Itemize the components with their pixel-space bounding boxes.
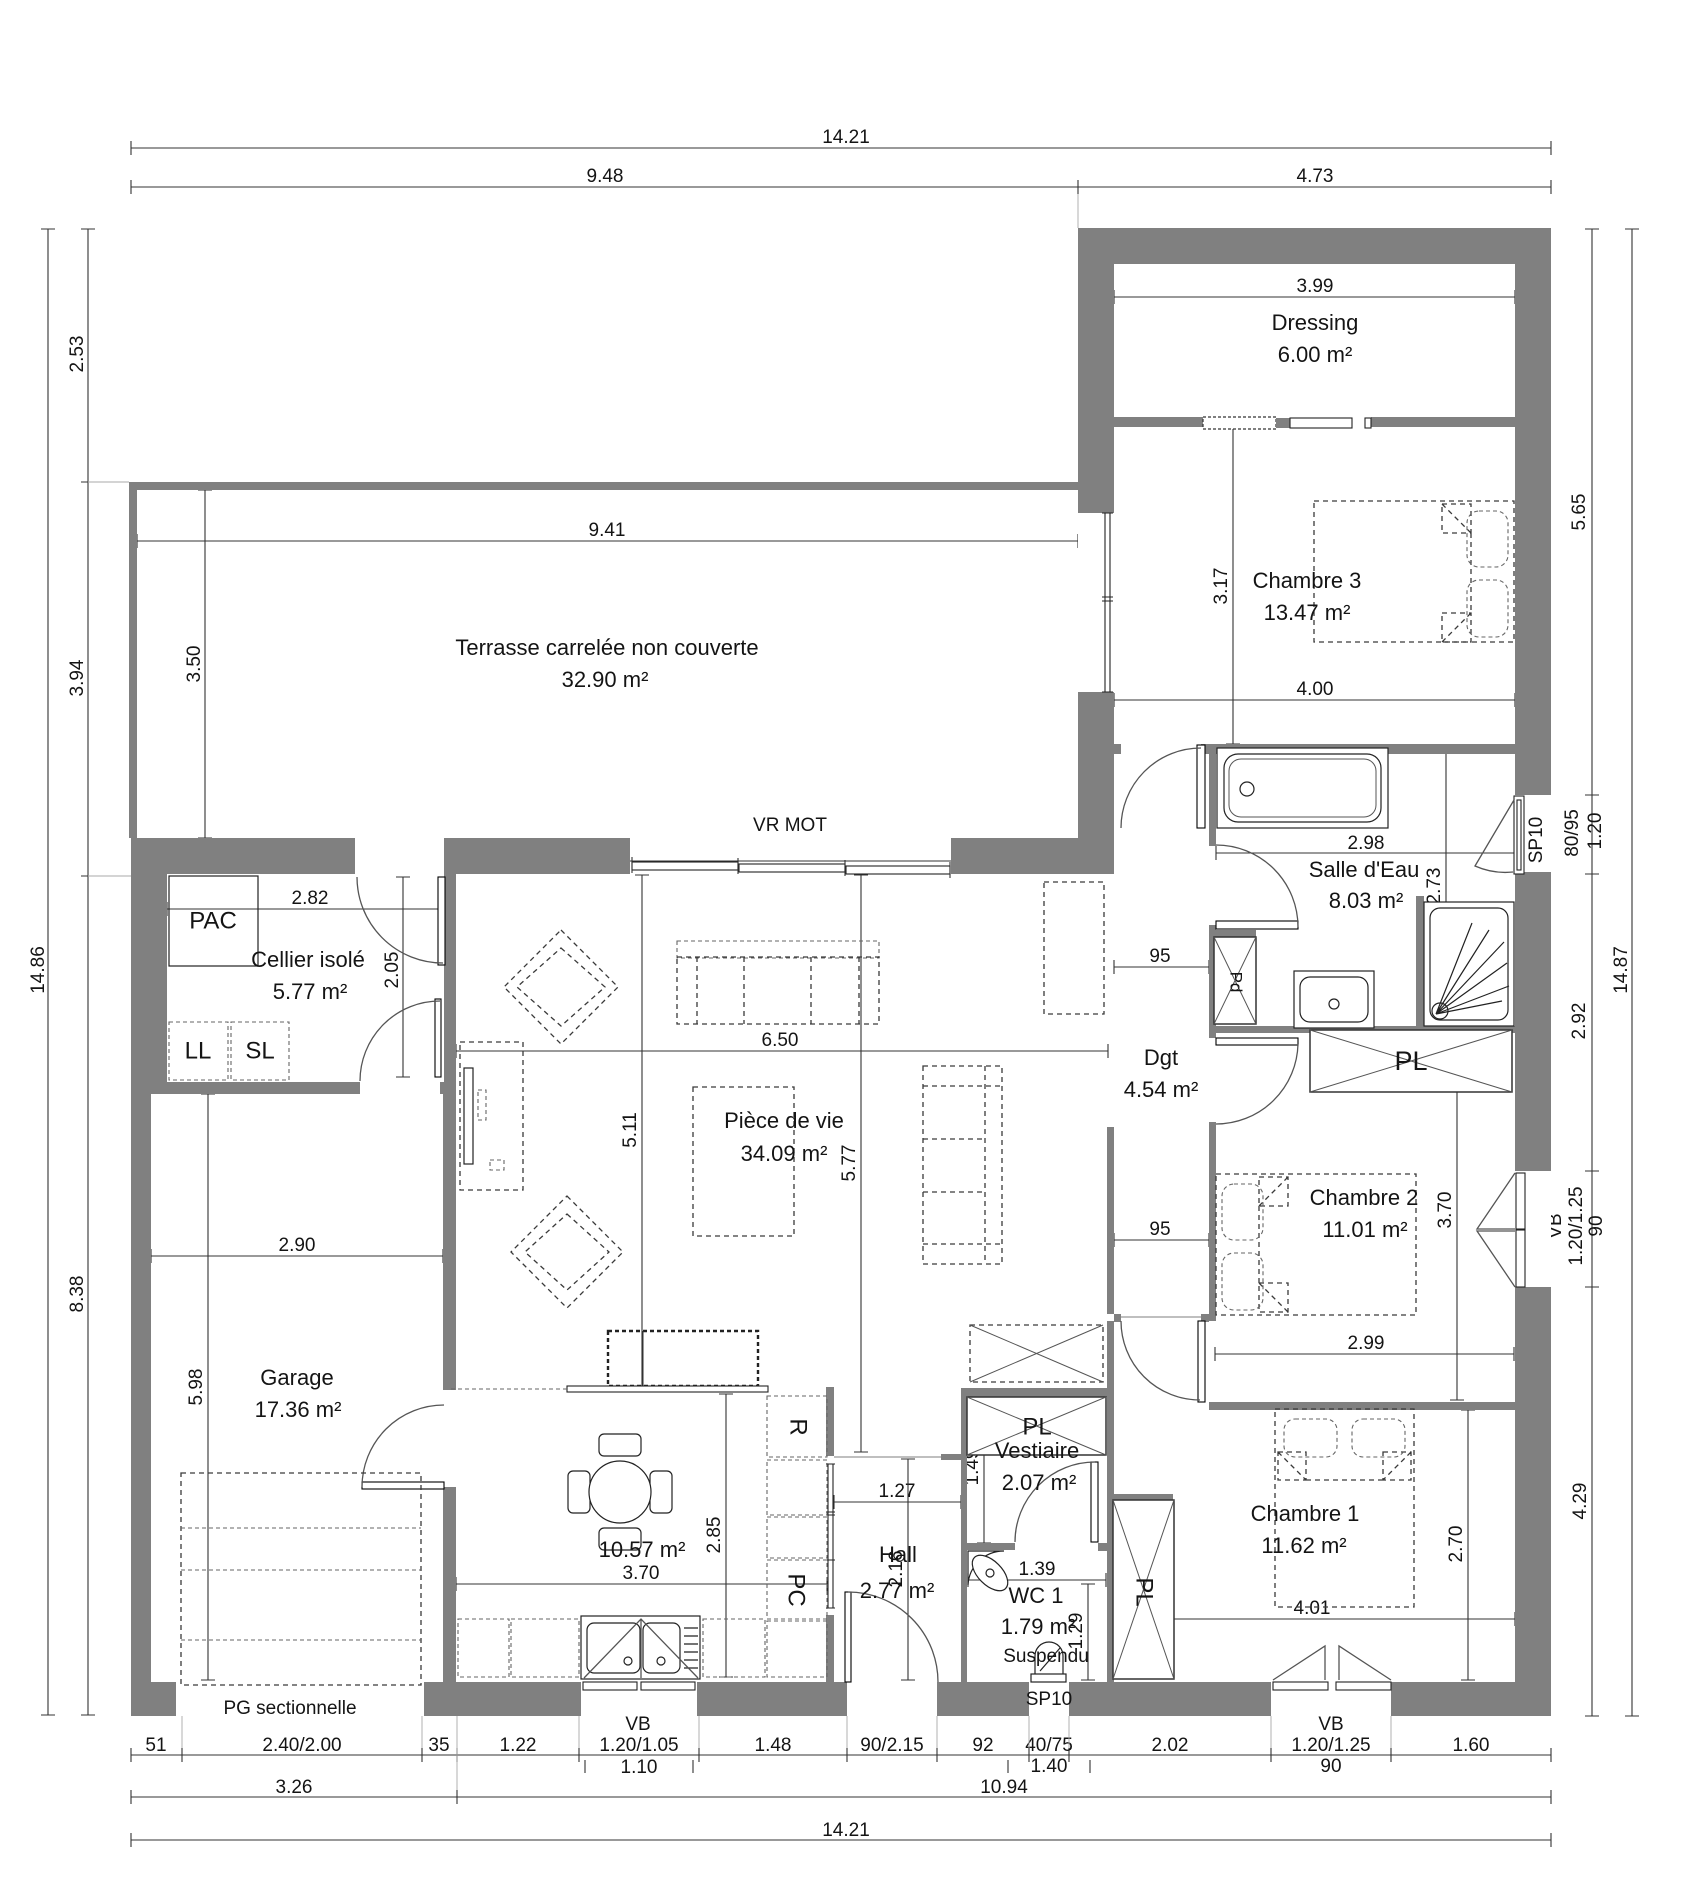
svg-text:PL: PL xyxy=(1022,1413,1051,1440)
svg-text:17.36 m²: 17.36 m² xyxy=(255,1397,342,1422)
svg-text:2.99: 2.99 xyxy=(1348,1333,1385,1354)
svg-text:Garage: Garage xyxy=(260,1365,333,1390)
svg-text:PC: PC xyxy=(783,1573,810,1606)
svg-text:40/75: 40/75 xyxy=(1025,1735,1073,1756)
svg-text:Dressing: Dressing xyxy=(1272,310,1359,335)
svg-text:1.27: 1.27 xyxy=(879,1481,916,1502)
svg-text:Vestiaire: Vestiaire xyxy=(995,1438,1079,1463)
svg-text:WC 1: WC 1 xyxy=(1009,1583,1064,1608)
svg-text:14.86: 14.86 xyxy=(28,946,49,994)
svg-text:80/95: 80/95 xyxy=(1562,809,1583,857)
svg-text:51: 51 xyxy=(145,1735,166,1756)
svg-text:1.10: 1.10 xyxy=(621,1757,658,1778)
svg-text:10.94: 10.94 xyxy=(980,1777,1028,1798)
svg-text:14.21: 14.21 xyxy=(822,127,870,148)
svg-text:PL: PL xyxy=(1131,1577,1158,1606)
svg-text:2.92: 2.92 xyxy=(1569,1003,1590,1040)
svg-text:1.20: 1.20 xyxy=(1585,813,1606,850)
svg-text:2.98: 2.98 xyxy=(1348,833,1385,854)
svg-text:VB: VB xyxy=(625,1714,650,1735)
svg-text:R: R xyxy=(785,1418,812,1435)
svg-text:4.54 m²: 4.54 m² xyxy=(1124,1077,1199,1102)
svg-text:2.85: 2.85 xyxy=(704,1517,725,1554)
svg-text:2.53: 2.53 xyxy=(67,336,88,373)
svg-text:Pd: Pd xyxy=(1227,972,1246,993)
svg-text:4.01: 4.01 xyxy=(1294,1598,1331,1619)
svg-text:5.77 m²: 5.77 m² xyxy=(273,979,348,1004)
svg-text:8.03 m²: 8.03 m² xyxy=(1329,888,1404,913)
svg-text:Chambre 1: Chambre 1 xyxy=(1251,1501,1360,1526)
svg-text:10.57 m²: 10.57 m² xyxy=(599,1537,686,1562)
svg-text:Salle d'Eau: Salle d'Eau xyxy=(1309,857,1420,882)
svg-text:1.20/1.25: 1.20/1.25 xyxy=(1291,1735,1370,1756)
svg-text:SP10: SP10 xyxy=(1526,817,1547,863)
svg-text:13.47 m²: 13.47 m² xyxy=(1264,600,1351,625)
svg-text:Terrasse carrelée non couverte: Terrasse carrelée non couverte xyxy=(455,635,758,660)
svg-text:2.07 m²: 2.07 m² xyxy=(1002,1470,1077,1495)
svg-text:Chambre 2: Chambre 2 xyxy=(1310,1185,1419,1210)
svg-text:Chambre 3: Chambre 3 xyxy=(1253,568,1362,593)
svg-text:1.79 m²: 1.79 m² xyxy=(1001,1614,1076,1639)
svg-text:9.48: 9.48 xyxy=(587,166,624,187)
svg-text:14.21: 14.21 xyxy=(822,1820,870,1841)
svg-text:2.82: 2.82 xyxy=(292,888,329,909)
svg-text:14.87: 14.87 xyxy=(1611,946,1632,994)
svg-text:2.05: 2.05 xyxy=(382,952,403,989)
svg-text:3.17: 3.17 xyxy=(1211,568,1232,605)
svg-text:8.38: 8.38 xyxy=(67,1276,88,1313)
svg-text:PG sectionnelle: PG sectionnelle xyxy=(223,1698,356,1719)
svg-text:1.48: 1.48 xyxy=(755,1735,792,1756)
svg-text:32.90 m²: 32.90 m² xyxy=(562,667,649,692)
svg-text:90: 90 xyxy=(1320,1756,1341,1777)
svg-text:PL: PL xyxy=(1394,1046,1427,1076)
svg-text:SL: SL xyxy=(245,1037,274,1064)
svg-text:Hall: Hall xyxy=(879,1542,917,1567)
svg-text:VR MOT: VR MOT xyxy=(753,815,827,836)
svg-text:92: 92 xyxy=(972,1735,993,1756)
svg-text:11.01 m²: 11.01 m² xyxy=(1322,1217,1407,1242)
svg-text:5.98: 5.98 xyxy=(186,1369,207,1406)
svg-text:95: 95 xyxy=(1149,1219,1170,1240)
svg-text:3.70: 3.70 xyxy=(623,1563,660,1584)
svg-text:6.00 m²: 6.00 m² xyxy=(1278,342,1353,367)
svg-text:Cellier isolé: Cellier isolé xyxy=(251,947,365,972)
svg-text:11.62 m²: 11.62 m² xyxy=(1261,1533,1346,1558)
svg-text:2.02: 2.02 xyxy=(1152,1735,1189,1756)
svg-text:2.90: 2.90 xyxy=(279,1235,316,1256)
svg-text:VB: VB xyxy=(1318,1714,1343,1735)
svg-text:5.11: 5.11 xyxy=(620,1112,641,1148)
svg-text:2.40/2.00: 2.40/2.00 xyxy=(262,1735,341,1756)
svg-text:2.77 m²: 2.77 m² xyxy=(860,1578,935,1603)
svg-text:35: 35 xyxy=(428,1735,449,1756)
svg-text:Pièce de vie: Pièce de vie xyxy=(724,1108,844,1133)
svg-text:4.29: 4.29 xyxy=(1570,1483,1591,1520)
svg-text:2.73: 2.73 xyxy=(1424,868,1445,905)
svg-text:9.41: 9.41 xyxy=(589,520,626,541)
svg-text:1.20/1.25: 1.20/1.25 xyxy=(1566,1186,1587,1265)
svg-text:PAC: PAC xyxy=(189,907,237,934)
svg-text:5.65: 5.65 xyxy=(1569,494,1590,531)
svg-text:1.22: 1.22 xyxy=(500,1735,537,1756)
svg-text:4.00: 4.00 xyxy=(1297,679,1334,700)
svg-text:6.50: 6.50 xyxy=(762,1030,799,1051)
svg-text:3.26: 3.26 xyxy=(276,1777,313,1798)
svg-text:Dgt: Dgt xyxy=(1144,1045,1178,1070)
svg-text:90/2.15: 90/2.15 xyxy=(860,1735,923,1756)
svg-text:3.50: 3.50 xyxy=(184,646,205,683)
svg-text:1.20/1.05: 1.20/1.05 xyxy=(599,1735,678,1756)
svg-text:34.09 m²: 34.09 m² xyxy=(741,1141,828,1166)
svg-text:1.60: 1.60 xyxy=(1453,1735,1490,1756)
svg-text:1.40: 1.40 xyxy=(1031,1756,1068,1777)
svg-text:SP10: SP10 xyxy=(1026,1689,1072,1710)
svg-text:2.70: 2.70 xyxy=(1446,1526,1467,1563)
svg-text:90: 90 xyxy=(1586,1215,1607,1236)
svg-text:3.99: 3.99 xyxy=(1297,276,1334,297)
svg-text:3.70: 3.70 xyxy=(1435,1192,1456,1229)
svg-text:1.39: 1.39 xyxy=(1019,1559,1056,1580)
svg-text:4.73: 4.73 xyxy=(1297,166,1334,187)
svg-text:LL: LL xyxy=(185,1037,212,1064)
svg-text:3.94: 3.94 xyxy=(67,659,88,696)
svg-text:Suspendu: Suspendu xyxy=(1003,1646,1089,1667)
svg-text:5.77: 5.77 xyxy=(839,1145,860,1182)
svg-text:95: 95 xyxy=(1149,946,1170,967)
